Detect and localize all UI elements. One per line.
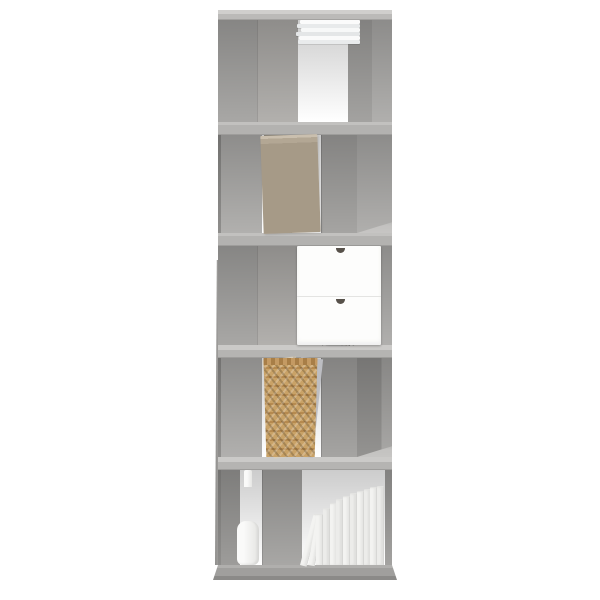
tier-2 [218, 135, 392, 233]
shelf-panel-1 [218, 122, 392, 135]
book-row [300, 470, 384, 565]
book [377, 486, 384, 565]
mini-drawer-unit [297, 246, 381, 345]
bottle-vase [237, 470, 259, 565]
tier-3 [218, 246, 392, 345]
base-panel [213, 565, 397, 580]
shelf-panel-3 [218, 345, 392, 358]
shelf-panel-4 [218, 457, 392, 470]
wicker-basket [263, 358, 318, 457]
shelf-panel-2 [218, 233, 392, 246]
bookcase [218, 10, 392, 580]
tier-5 [218, 470, 392, 565]
book [323, 508, 330, 565]
plank-stack [260, 134, 320, 234]
top-panel [218, 10, 392, 20]
tier-4 [218, 358, 392, 457]
drawer-top [297, 246, 381, 296]
vase-neck [244, 470, 252, 487]
drawer-bottom [297, 296, 381, 347]
tier-1 [218, 20, 392, 122]
book [357, 491, 364, 565]
drawer-handle-icon [336, 299, 345, 304]
magazine-stack [296, 20, 362, 122]
book [350, 493, 357, 565]
drawer-handle-icon [336, 248, 345, 253]
book [316, 514, 323, 565]
magazine [298, 40, 360, 44]
basket-rim [263, 358, 318, 365]
product-photo [0, 0, 600, 600]
vase-body [237, 521, 259, 565]
